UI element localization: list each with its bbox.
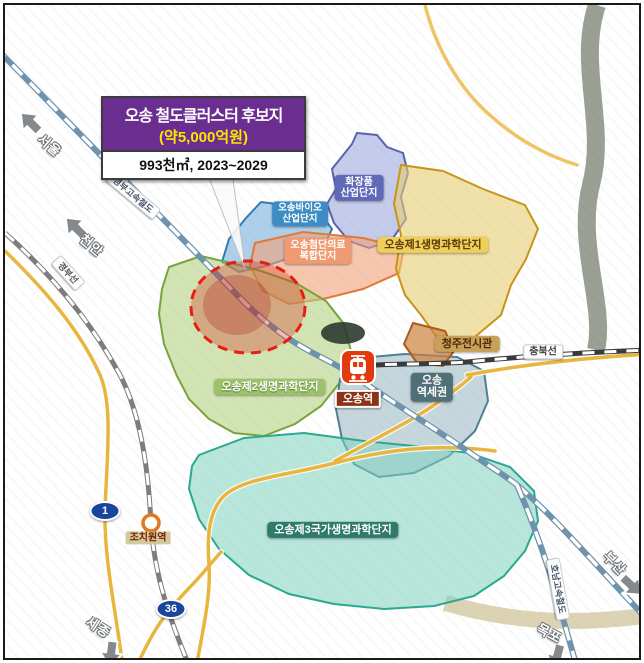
satellite-map: 화장품 산업단지 오송바이오 산업단지 오송첨단의료 복합단지 오송제1생명과학… [3, 3, 641, 660]
label-jochiwon-station: 조치원역 [126, 531, 171, 544]
callout-amount: (약5,000억원) [105, 126, 302, 147]
callout-spec: 993천㎡, 2023~2029 [103, 150, 304, 178]
label-medical-complex: 오송첨단의료 복합단지 [284, 238, 351, 264]
screenshot-frame: 화장품 산업단지 오송바이오 산업단지 오송첨단의료 복합단지 오송제1생명과학… [0, 0, 644, 663]
label-life-science-1: 오송제1생명과학단지 [377, 237, 488, 253]
osong-station-icon [340, 349, 376, 385]
callout-title: 오송 철도클러스터 후보지 [105, 102, 302, 126]
label-chungbuk-line: 충북선 [523, 344, 563, 359]
callout-header: 오송 철도클러스터 후보지 (약5,000억원) [103, 98, 304, 150]
label-bio-complex: 오송바이오 산업단지 [272, 201, 328, 226]
river [587, 5, 598, 350]
route-1-badge: 1 [90, 501, 121, 521]
pond [321, 322, 365, 344]
label-life-science-2: 오송제2생명과학단지 [214, 379, 325, 395]
riverbed [445, 603, 641, 621]
route-36-badge: 36 [156, 599, 187, 619]
jochiwon-station-marker [143, 515, 159, 531]
label-cosmetic-complex: 화장품 산업단지 [335, 175, 384, 201]
train-icon [340, 349, 376, 385]
label-station-district: 오송 역세권 [411, 373, 453, 402]
candidate-site-core [203, 275, 271, 335]
callout-box: 오송 철도클러스터 후보지 (약5,000억원) 993천㎡, 2023~202… [101, 96, 306, 180]
label-osong-station: 오송역 [335, 390, 381, 408]
label-exhibition: 청주전시관 [435, 336, 500, 352]
label-life-science-3: 오송제3국가생명과학단지 [267, 522, 398, 538]
